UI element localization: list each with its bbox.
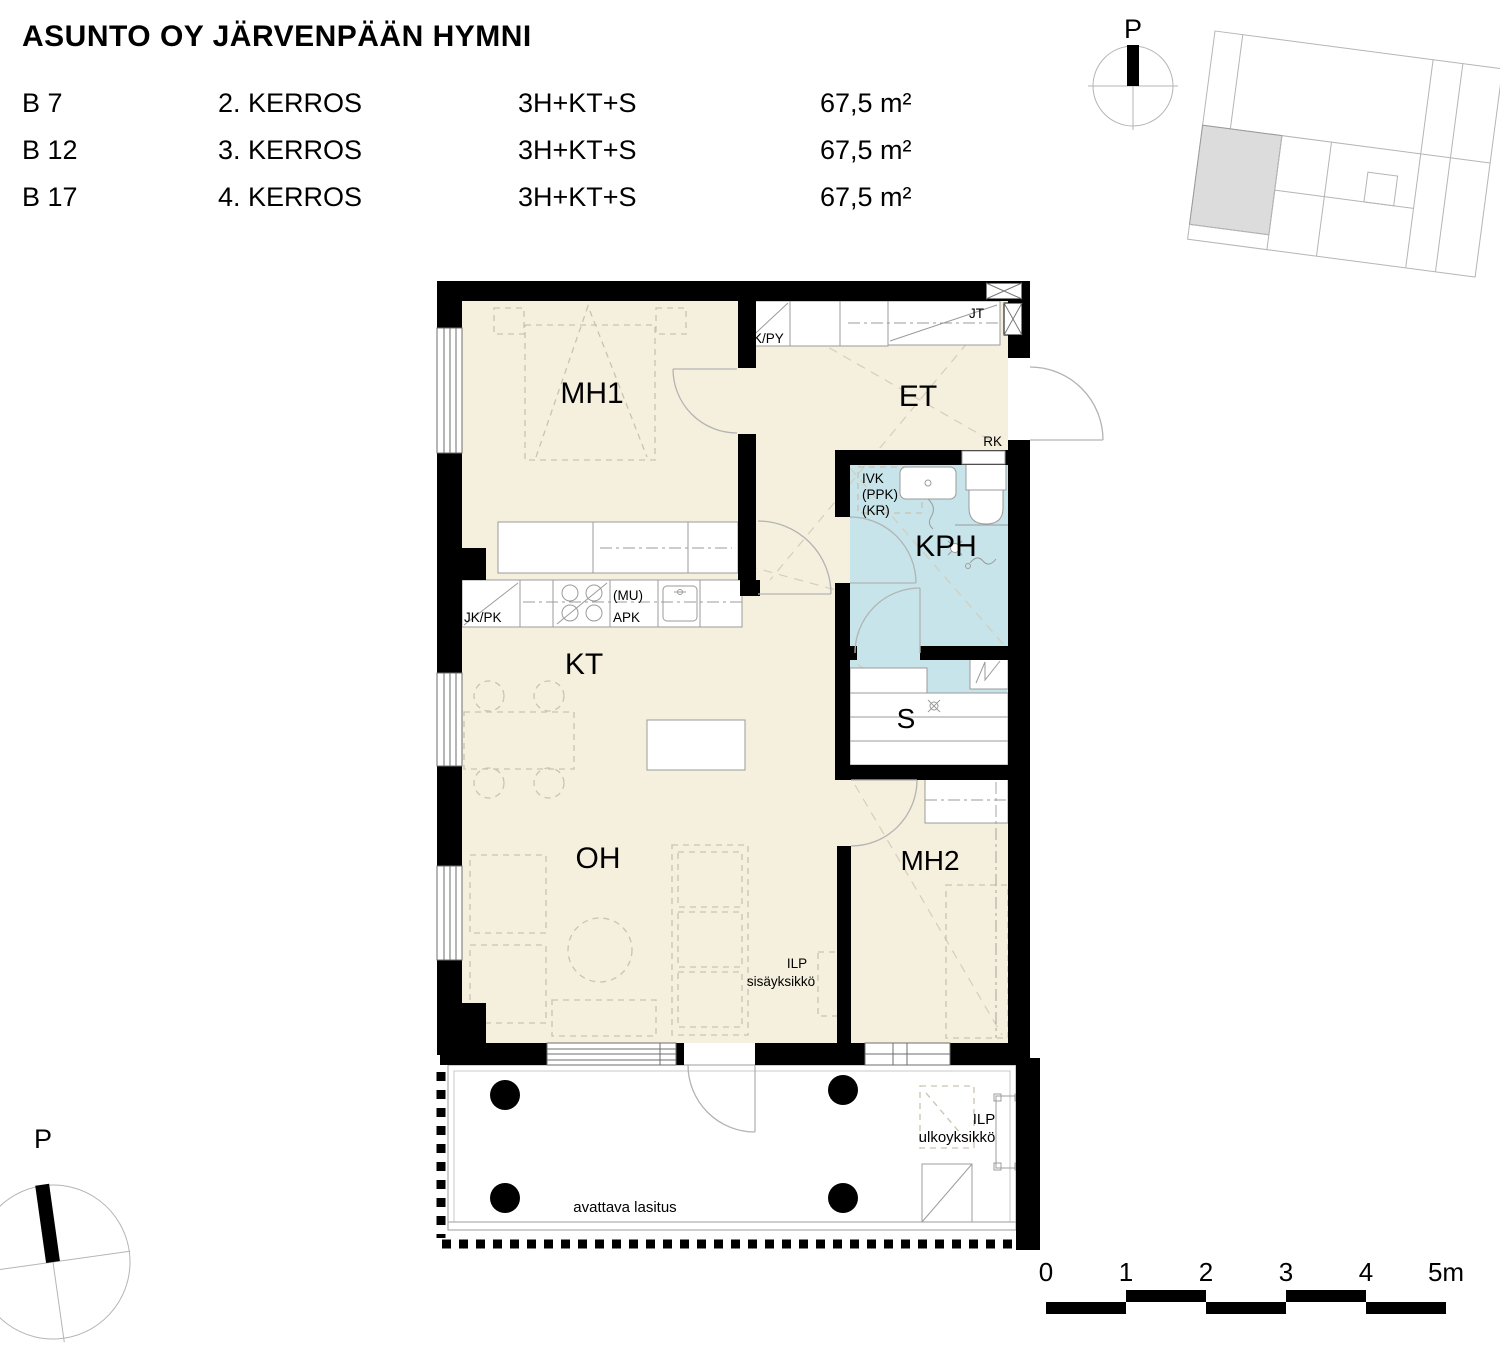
sauna-bench	[850, 668, 927, 693]
scale-tick-label: 4	[1359, 1257, 1373, 1287]
north-needle-icon	[35, 1184, 60, 1263]
balcony-column	[490, 1080, 520, 1110]
room-label-mh1: MH1	[560, 377, 623, 410]
apk-label: APK	[613, 610, 640, 625]
sauna-bench	[850, 693, 1008, 765]
scale-tick-label: 3	[1279, 1257, 1293, 1287]
kitchen-island	[647, 720, 745, 770]
kr-label: (KR)	[862, 503, 890, 518]
scale-tick-label: 5m	[1428, 1257, 1464, 1287]
ppk-label: (PPK)	[862, 487, 898, 502]
north-label: P	[1124, 14, 1142, 44]
sink-icon	[663, 586, 697, 621]
scale-tick-label: 0	[1039, 1257, 1053, 1287]
jk-pk-label: JK/PK	[464, 610, 502, 625]
balcony-column	[490, 1183, 520, 1213]
floor-plan-drawing: P	[0, 0, 1500, 1364]
ilp-indoor-label: sisäyksikkö	[747, 974, 815, 989]
ilp-indoor-label: ILP	[787, 956, 807, 971]
ivk-label: IVK	[862, 471, 884, 486]
mu-label: (MU)	[613, 588, 643, 603]
ilp-outdoor-label: ulkoyksikkö	[919, 1129, 996, 1146]
toilet-icon	[966, 464, 1006, 524]
balcony-column	[828, 1075, 858, 1105]
north-needle-icon	[1127, 45, 1139, 86]
window	[437, 866, 462, 960]
balcony-column	[828, 1183, 858, 1213]
room-label-et: ET	[899, 380, 937, 413]
scale-tick-label: 1	[1119, 1257, 1133, 1287]
hall-closets: SK/PY JT	[742, 301, 1000, 346]
room-label-kt: KT	[565, 648, 603, 681]
scale-tick-label: 2	[1199, 1257, 1213, 1287]
kitchen-counter: JK/PK (MU) APK	[462, 580, 742, 627]
door-entrance	[1030, 367, 1103, 440]
rk-cabinet	[962, 451, 1005, 464]
north-arrow-bottom: P	[0, 1124, 142, 1357]
mh1-wardrobe	[498, 522, 738, 573]
key-map	[1188, 31, 1500, 277]
window	[437, 328, 462, 453]
room-label-oh: OH	[576, 842, 621, 875]
north-arrow-top: P	[1088, 14, 1178, 130]
room-label-kph: KPH	[915, 530, 977, 563]
balcony: ILP ulkoyksikkö avattava lasitus	[441, 1065, 1030, 1244]
north-label: P	[34, 1124, 52, 1154]
rk-label: RK	[983, 434, 1002, 449]
window	[437, 673, 462, 766]
highlighted-unit	[1190, 125, 1282, 235]
window	[865, 1043, 950, 1065]
jt-label: JT	[969, 306, 984, 321]
room-label-s: S	[897, 703, 916, 734]
window	[547, 1043, 676, 1065]
scale-bar: 0 1 2 3 4 5m	[1039, 1257, 1464, 1314]
balcony-side-wall	[1016, 1058, 1040, 1250]
room-label-mh2: MH2	[900, 845, 959, 876]
ilp-outdoor-label: ILP	[973, 1111, 996, 1128]
glazing-label: avattava lasitus	[573, 1199, 676, 1216]
sauna-light-icon	[928, 700, 940, 712]
sauna-heater-icon	[970, 655, 1008, 689]
